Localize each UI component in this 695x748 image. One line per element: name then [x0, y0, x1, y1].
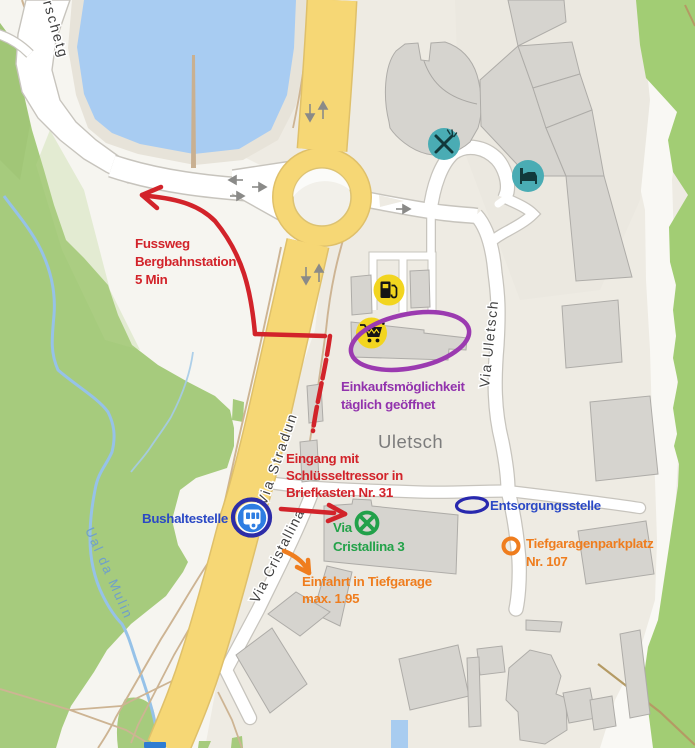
- svg-text:Uletsch: Uletsch: [378, 431, 443, 452]
- svg-text:Entsorgungsstelle: Entsorgungsstelle: [490, 498, 601, 513]
- svg-text:Bushaltestelle: Bushaltestelle: [142, 511, 228, 526]
